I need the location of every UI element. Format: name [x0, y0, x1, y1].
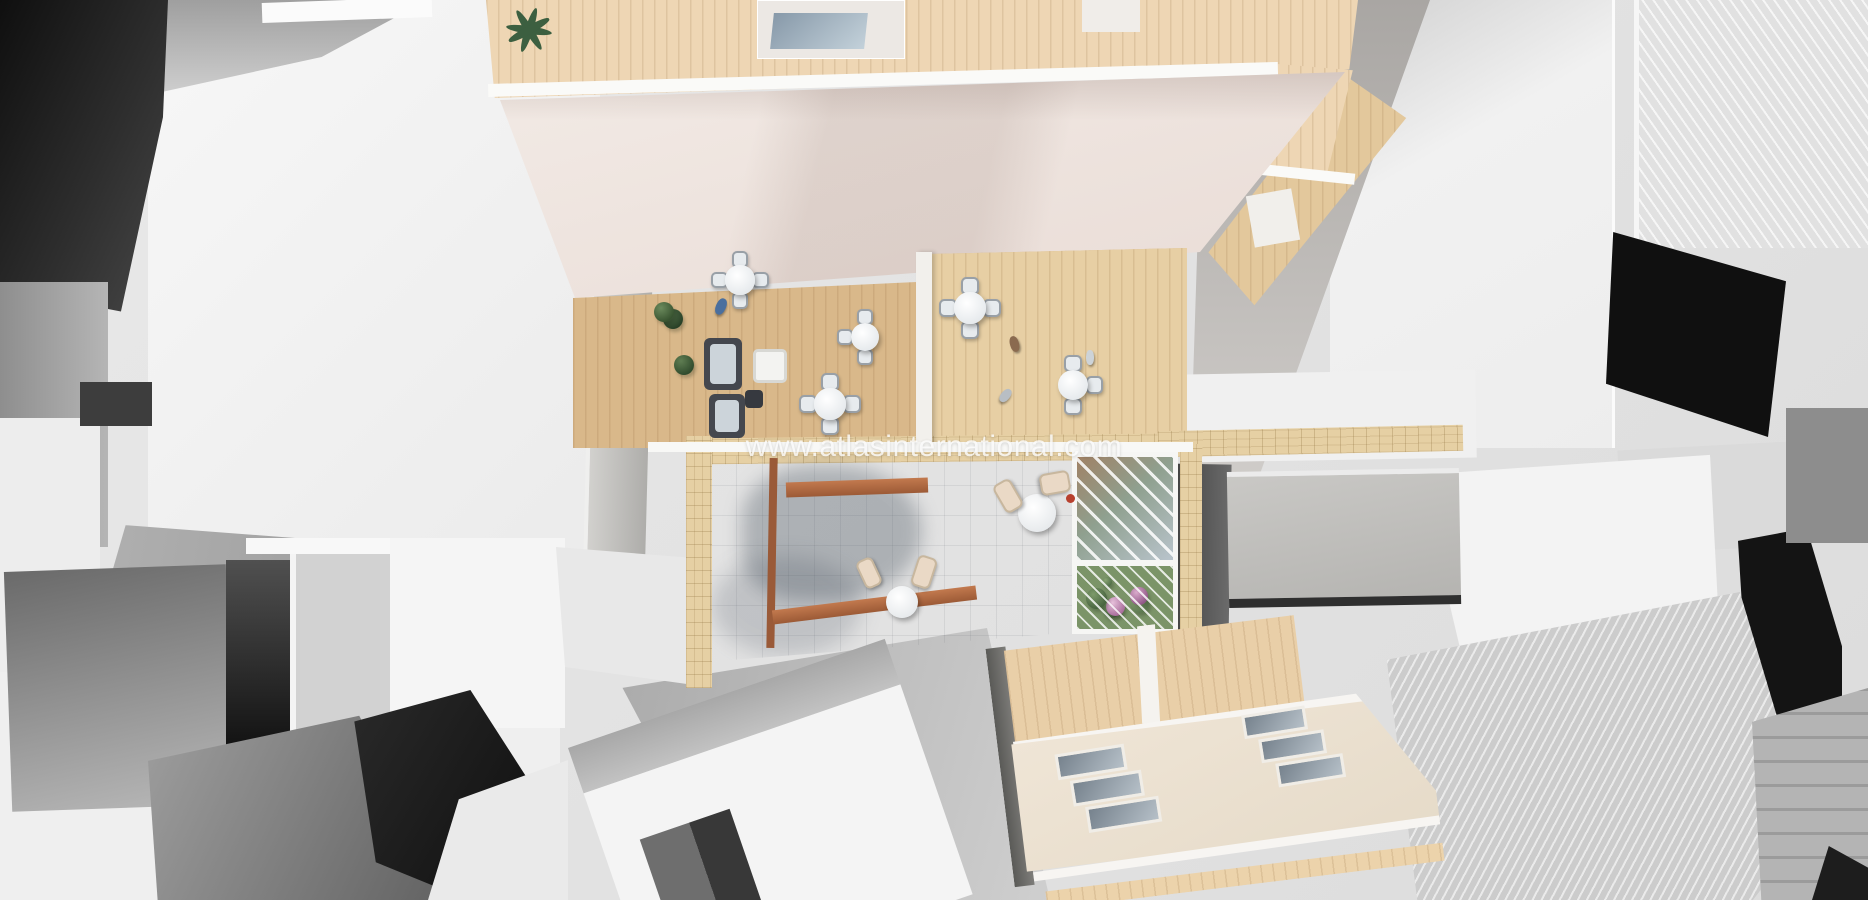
bush-icon	[654, 302, 674, 322]
dining-table-set	[838, 310, 892, 364]
dining-table-set	[800, 374, 860, 434]
bush-icon	[674, 355, 694, 375]
chair	[857, 349, 873, 365]
aerial-architectural-render: www.atlasinternational.com	[0, 0, 1868, 900]
round-table	[725, 265, 754, 294]
deck-tree-column-right	[1143, 240, 1205, 450]
chair	[732, 292, 749, 309]
side-table	[745, 390, 763, 408]
watermark: www.atlasinternational.com	[0, 430, 1868, 464]
sofa-cushions	[715, 400, 739, 432]
chair	[983, 299, 1001, 317]
dining-table-set	[940, 278, 1000, 338]
deck-tree-column-left	[648, 246, 708, 454]
person	[1086, 350, 1094, 365]
flower-pot	[1066, 494, 1075, 503]
lounge-table	[886, 586, 918, 618]
round-table	[954, 292, 985, 323]
chair	[961, 321, 979, 339]
round-table	[851, 323, 879, 351]
sofa-cushions	[710, 344, 736, 384]
chair	[1086, 376, 1103, 393]
lounge-table	[1018, 494, 1056, 532]
dining-table-set	[1044, 356, 1102, 414]
armchair	[753, 349, 787, 383]
chair	[752, 272, 769, 289]
round-table	[814, 388, 845, 419]
chair	[843, 395, 861, 413]
round-table	[1058, 370, 1088, 400]
chair	[1064, 398, 1081, 415]
outdoor-sofa	[704, 338, 742, 390]
